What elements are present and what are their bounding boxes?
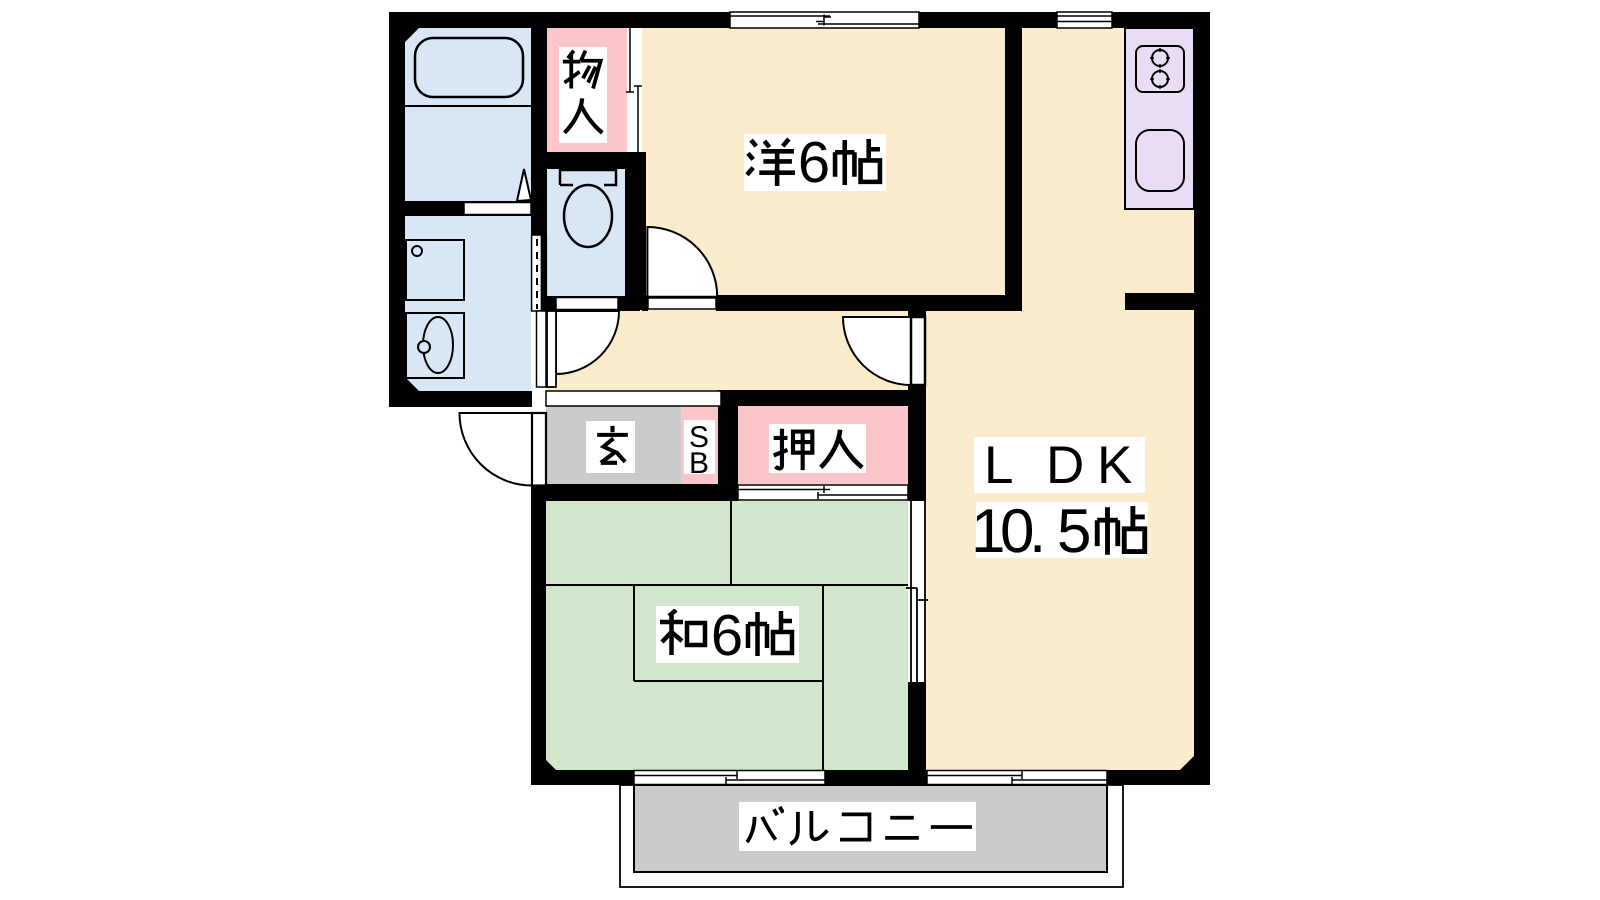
svg-text:.: .	[1029, 497, 1046, 566]
svg-text:B: B	[689, 447, 709, 480]
svg-text:6: 6	[711, 603, 743, 668]
svg-text:K: K	[1097, 436, 1132, 495]
svg-text:6: 6	[798, 130, 830, 195]
svg-text:5: 5	[1057, 497, 1091, 566]
svg-text:D: D	[1046, 436, 1084, 495]
svg-text:L: L	[984, 436, 1013, 495]
